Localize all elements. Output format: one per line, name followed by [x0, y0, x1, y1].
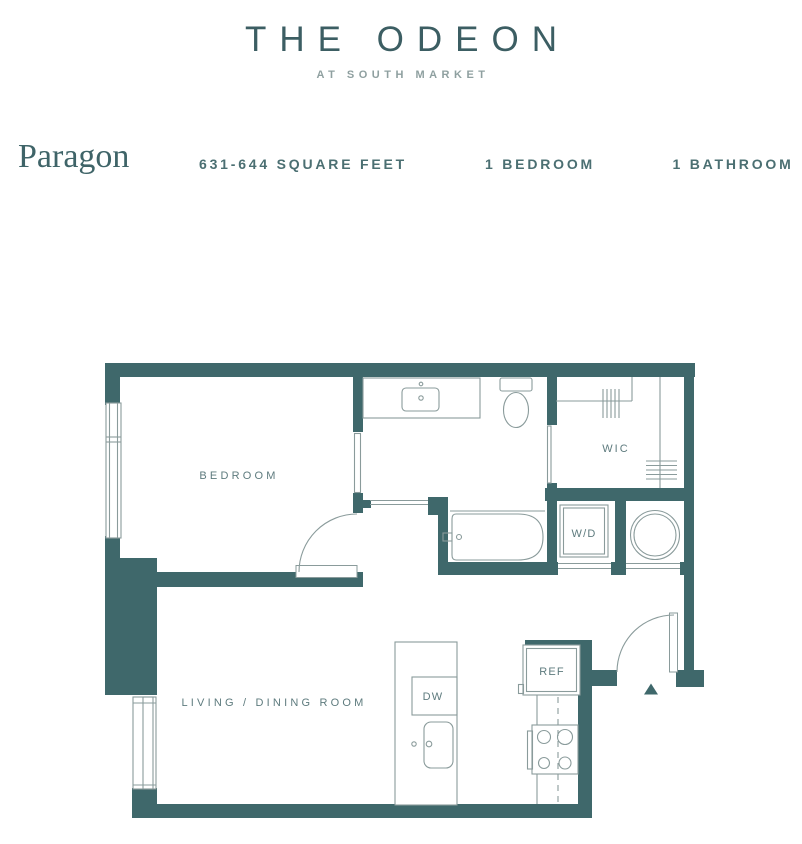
- toilet: [500, 378, 532, 428]
- wall-sill-block-left: [550, 562, 558, 575]
- bedroom-label: BEDROOM: [199, 470, 278, 482]
- wall-living-window-sill: [132, 788, 157, 806]
- tub-outline: [452, 514, 543, 560]
- floor-plan: BEDROOM LIVING / DINING ROOM WIC W/D DW …: [0, 0, 802, 844]
- wall-left-block: [105, 558, 157, 695]
- wic-door-line: [548, 426, 552, 483]
- tub-faucet-knob-icon: [457, 535, 462, 540]
- bedroom-door-arc: [299, 514, 357, 572]
- toilet-bowl: [504, 393, 529, 428]
- wall-bedroom-bath: [353, 363, 363, 432]
- walk-in-closet: [548, 377, 678, 488]
- wic-label: WIC: [602, 443, 629, 455]
- toilet-tank: [500, 378, 532, 391]
- wall-bath-wic-upper: [547, 377, 557, 425]
- refrigerator-label: REF: [539, 666, 565, 678]
- bathroom-threshold: [370, 501, 428, 505]
- bedroom-door-leaf: [296, 566, 357, 578]
- living-window: [133, 697, 156, 789]
- bathroom-vanity: [363, 378, 480, 418]
- wall-right: [684, 363, 694, 672]
- vanity-faucet-icon: [419, 382, 423, 386]
- wall-sill-block-mid: [611, 562, 626, 575]
- washer-dryer-label: W/D: [572, 528, 597, 540]
- wall-sill-block-right: [680, 562, 694, 575]
- living-dining-label: LIVING / DINING ROOM: [181, 697, 366, 709]
- entry-door-leaf: [670, 613, 678, 672]
- dryer-drum-icon: [631, 511, 680, 560]
- wall-entry-stub-left: [592, 670, 617, 686]
- vanity-sink: [402, 388, 439, 411]
- pocket-door-panel: [355, 434, 361, 493]
- wall-top: [105, 363, 695, 377]
- wall-wic-bottom: [545, 488, 687, 501]
- dishwasher-label: DW: [423, 691, 444, 703]
- entry-marker-triangle-icon: [644, 684, 658, 695]
- bedroom-window-frame: [106, 403, 121, 538]
- wall-left-upper: [105, 363, 120, 405]
- vanity-drain-icon: [419, 396, 423, 400]
- wall-tub-bottom: [438, 562, 557, 575]
- wall-closet-separator: [615, 501, 626, 567]
- dryer-drum-icon-inner: [634, 514, 676, 556]
- bedroom-door: [296, 434, 361, 578]
- entry-door-arc: [617, 615, 674, 672]
- entry-door: [617, 613, 678, 695]
- wall-bottom: [132, 804, 592, 818]
- wall-bedroom-door-block: [353, 493, 363, 513]
- vanity-counter: [363, 378, 480, 418]
- bedroom-window: [106, 403, 121, 538]
- bathtub: [443, 511, 545, 560]
- wall-bedroom-door-tab: [363, 500, 371, 508]
- wall-entry-foot-right: [676, 670, 704, 687]
